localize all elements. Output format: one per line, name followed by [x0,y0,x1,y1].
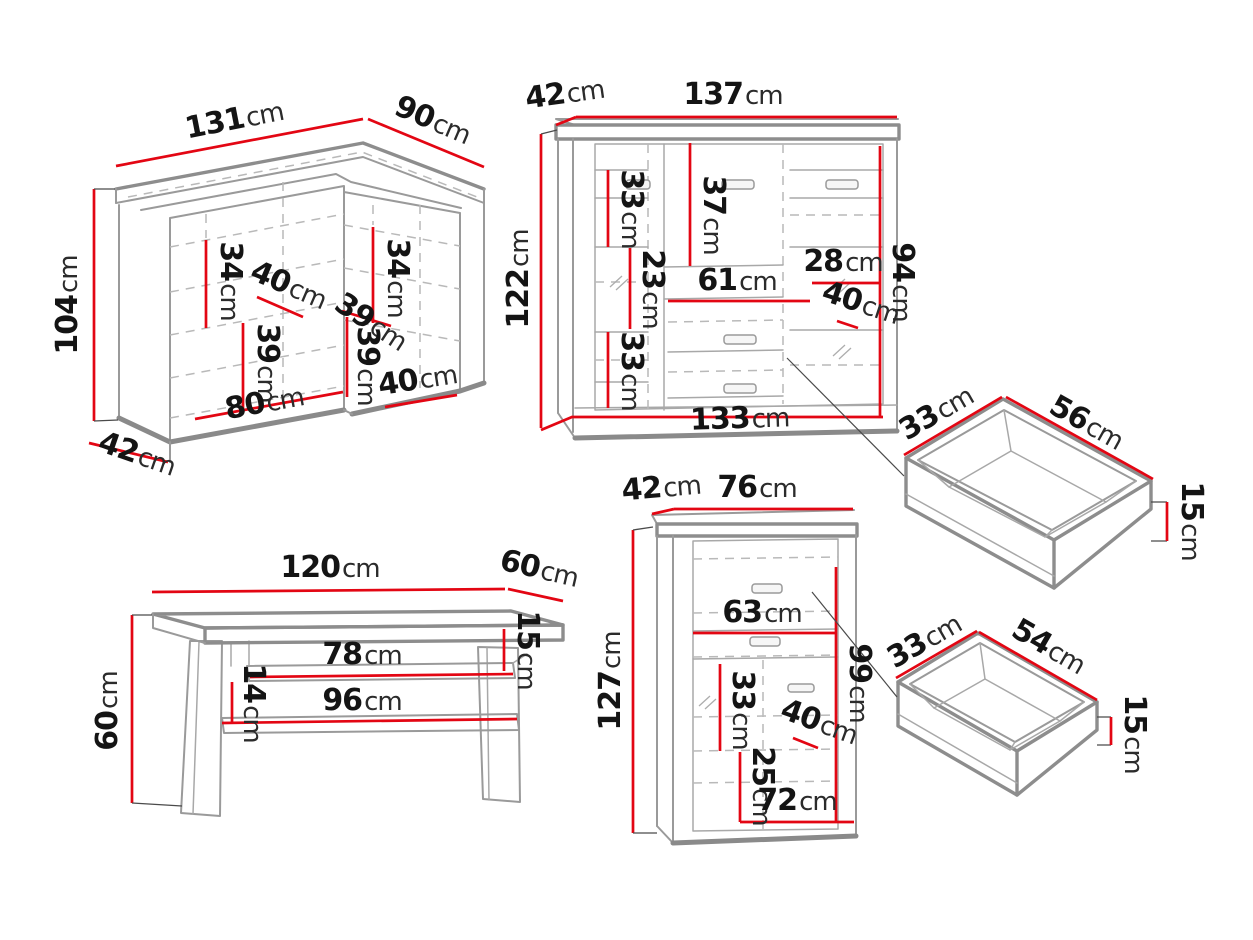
coffee-table-drawing: 120cm 60cm 60cm 15cm 78cm 14cm 96cm [90,543,582,816]
dim-sideboard-right-shelf: 28cm [803,244,882,279]
dim-table-top-gap: 15cm [510,610,545,689]
dim-cabinet-shelf: 33cm [725,670,760,749]
cabinet-drawer-handle [750,637,780,646]
dim-sideboard-depth: 42cm [523,71,606,117]
dim-cabinet-base-width: 72cm [757,783,836,818]
sideboard-drawer-handle [724,384,756,393]
dim-corner-top-depth: 90cm [389,89,476,152]
corner-cabinet-drawing: 131cm 90cm 104cm 34cm 34cm 40cm 39cm 39c… [50,89,484,484]
dim-sideboard-width: 137cm [683,77,782,112]
furniture-dimension-diagram: 131cm 90cm 104cm 34cm 34cm 40cm 39cm 39c… [0,0,1253,940]
cabinet-drawing: 42cm 76cm 127cm 63cm 99cm 33cm 40cm 25cm… [593,467,897,843]
drawer-small-drawing: 33cm 54cm 15cm [881,606,1152,795]
dim-drawer-small-height: 15cm [1117,694,1152,773]
dim-cabinet-height: 127cm [593,631,628,730]
sideboard-drawing: 42cm 137cm 122cm 33cm 37cm 23cm 61cm 28c… [501,71,920,476]
dim-table-top-width: 120cm [280,550,379,585]
coffee-table-left-leg [181,641,222,816]
dim-table-shelf-width: 78cm [322,637,401,672]
dim-drawer-large-height: 15cm [1174,481,1209,560]
sideboard-drawer-handle [724,335,756,344]
dim-cabinet-inner-height: 99cm [842,643,877,722]
dim-sideboard-upper-left-shelf: 33cm [614,169,649,248]
dim-table-height: 60cm [90,671,125,750]
dim-sideboard-base-width: 133cm [689,399,789,437]
drawer-large-drawing: 33cm 56cm 15cm [893,378,1209,588]
dim-cabinet-width: 76cm [717,470,796,505]
dim-cabinet-depth: 42cm [620,467,702,509]
cabinet-door-handle [788,684,814,692]
sideboard-handle [826,180,858,189]
dim-corner-top-width: 131cm [182,93,286,146]
dim-sideboard-height: 122cm [501,229,536,328]
dim-sideboard-mid-left-shelf: 23cm [635,249,670,328]
dim-corner-base-depth: 42cm [94,425,180,484]
dim-corner-right-shelf: 34cm [380,238,415,317]
dim-corner-left-shelf: 34cm [213,241,248,320]
dim-corner-height: 104cm [50,255,85,354]
dim-cabinet-drawer-width: 63cm [722,595,801,630]
dim-sideboard-door-height: 37cm [696,175,731,254]
cabinet-drawer-handle [752,584,782,593]
dim-table-lower-shelf-width: 96cm [322,683,401,718]
diagram-canvas: 131cm 90cm 104cm 34cm 34cm 40cm 39cm 39c… [0,0,1253,940]
dim-table-top-depth: 60cm [497,543,582,595]
dim-sideboard-lower-left-shelf: 33cm [614,331,649,410]
dim-table-shelf-gap: 14cm [236,663,271,742]
dim-sideboard-drawer-width: 61cm [697,263,776,298]
